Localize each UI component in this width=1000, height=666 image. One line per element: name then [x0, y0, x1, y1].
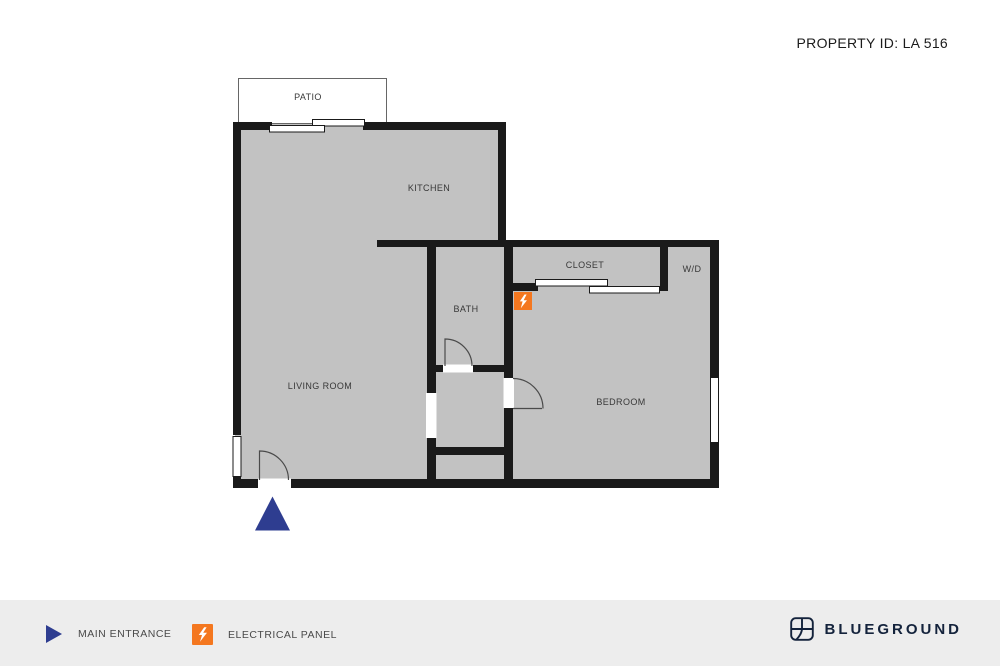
legend-label: ELECTRICAL PANEL	[228, 629, 337, 641]
brand-name: BLUEGROUND	[825, 621, 963, 638]
legend-label: MAIN ENTRANCE	[78, 628, 171, 640]
room-label-bath: BATH	[454, 304, 479, 314]
patio-sliding-door	[270, 126, 325, 133]
brand-logo: BLUEGROUND	[790, 617, 963, 641]
floor-plan-drawing	[0, 0, 1000, 666]
legend-main-entrance: MAIN ENTRANCE	[46, 625, 171, 643]
room-label-bedroom: BEDROOM	[596, 397, 645, 407]
main-entrance-marker	[255, 497, 290, 531]
bedroom-window	[711, 378, 719, 443]
legend-bar: MAIN ENTRANCE ELECTRICAL PANEL BLUEGROUN…	[0, 600, 1000, 666]
floor-plan-page: PROPERTY ID: LA 516	[0, 0, 1000, 666]
electrical-panel-icon	[192, 624, 213, 645]
room-label-kitchen: KITCHEN	[408, 183, 450, 193]
closet-sliding-door	[536, 280, 608, 287]
room-label-closet: CLOSET	[566, 260, 604, 270]
room-label-wd: W/D	[683, 264, 702, 274]
room-label-patio: PATIO	[294, 92, 322, 102]
room-label-living-room: LIVING ROOM	[288, 381, 352, 391]
closet-sliding-door	[590, 287, 660, 294]
electrical-panel-marker	[514, 292, 532, 310]
blueground-logo-icon	[790, 617, 814, 641]
living-room-window	[233, 437, 241, 477]
entrance-triangle-icon	[46, 625, 63, 643]
legend-electrical-panel: ELECTRICAL PANEL	[192, 624, 337, 645]
